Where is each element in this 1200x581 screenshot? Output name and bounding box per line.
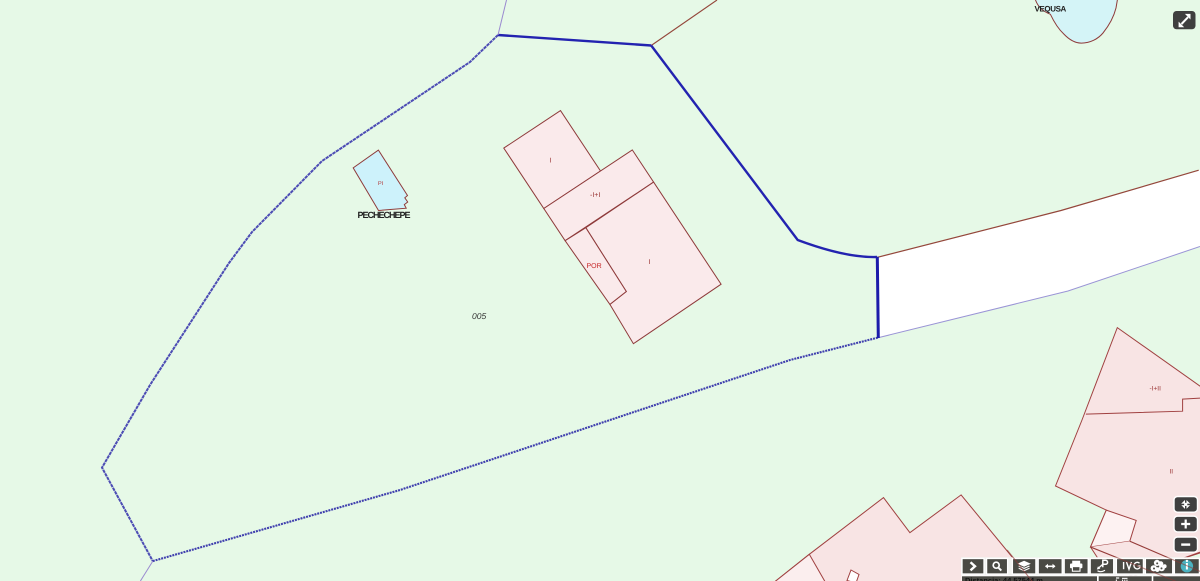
svg-text:POR: POR <box>587 263 602 270</box>
svg-text:VEQUSA: VEQUSA <box>1035 5 1067 14</box>
svg-text:PECHECHEPE: PECHECHEPE <box>358 210 411 220</box>
svg-text:I: I <box>550 158 552 165</box>
svg-text:-I+II: -I+II <box>1150 386 1162 393</box>
svg-text:005: 005 <box>472 311 486 321</box>
svg-text:II: II <box>1170 469 1174 476</box>
svg-text:-I+I: -I+I <box>590 192 600 199</box>
svg-text:I: I <box>649 259 651 266</box>
svg-text:PI: PI <box>378 181 384 187</box>
